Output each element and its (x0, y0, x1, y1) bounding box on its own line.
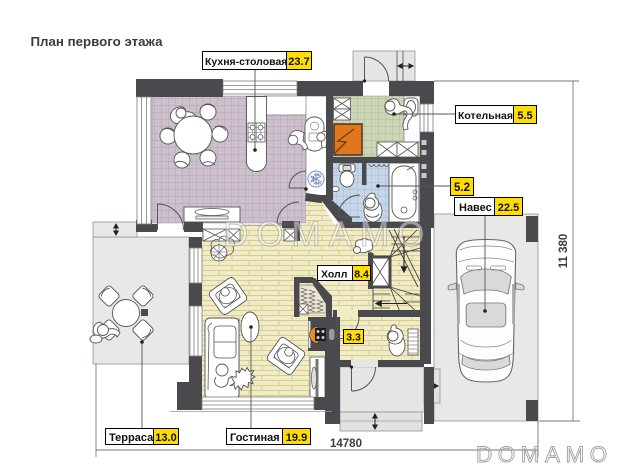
svg-text:5.5: 5.5 (517, 110, 532, 122)
svg-text:22.5: 22.5 (498, 202, 519, 214)
svg-text:13.0: 13.0 (155, 432, 176, 444)
svg-text:19.9: 19.9 (286, 432, 307, 444)
svg-text:Кухня-столовая: Кухня-столовая (205, 56, 287, 68)
svg-text:Холл: Холл (321, 269, 347, 281)
svg-text:План первого этажа: План первого этажа (31, 34, 164, 49)
svg-text:DOMAMO: DOMAMO (223, 215, 432, 254)
svg-text:11 380: 11 380 (558, 234, 570, 269)
svg-text:3.3: 3.3 (346, 332, 361, 344)
svg-text:5.2: 5.2 (454, 182, 470, 194)
svg-text:23.7: 23.7 (288, 56, 309, 68)
svg-text:Котельная: Котельная (458, 110, 513, 122)
svg-text:8.4: 8.4 (354, 269, 369, 281)
svg-text:DOMAMO: DOMAMO (476, 442, 613, 467)
svg-text:Терраса: Терраса (109, 432, 154, 444)
svg-text:14780: 14780 (330, 438, 362, 450)
svg-text:Гостиная: Гостиная (230, 432, 280, 444)
svg-text:Навес: Навес (459, 202, 492, 214)
